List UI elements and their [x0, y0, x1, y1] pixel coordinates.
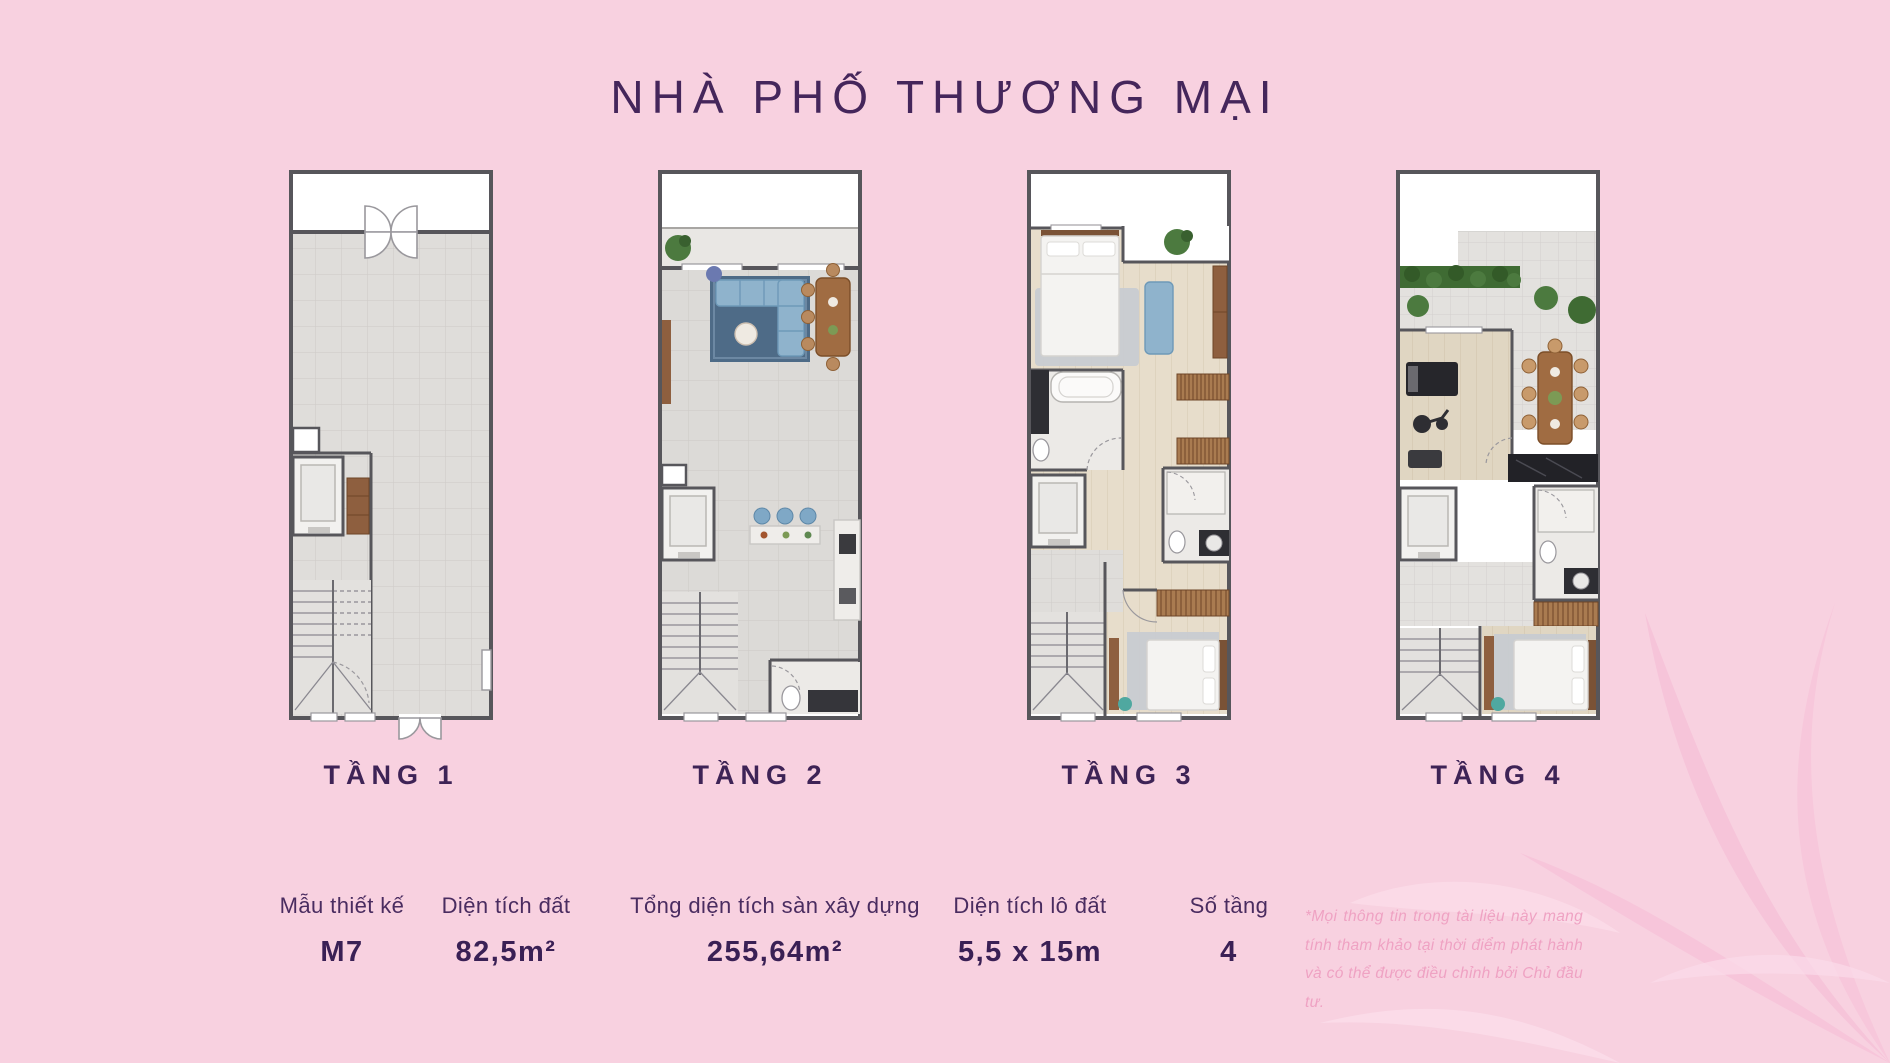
spec-total-floor-area: Tổng diện tích sàn xây dựng 255,64m²: [615, 893, 935, 969]
floorplan-1-image: [289, 170, 493, 752]
floor-label-tang-1: TẦNG 1: [289, 760, 493, 791]
floorplan-tang-3: [1027, 170, 1231, 752]
gym-room: [1400, 327, 1512, 480]
balcony: [662, 228, 858, 268]
landing: [1400, 562, 1534, 626]
hedge-planter: [1400, 265, 1521, 288]
floorplan-2-image: [658, 170, 862, 752]
flower-pot: [706, 266, 722, 282]
spec-land-area: Diện tích đất 82,5m²: [376, 893, 636, 969]
coffee-table: [735, 323, 757, 345]
bar-counter: [750, 508, 820, 544]
plant-icon: [1407, 295, 1429, 317]
staircase: [1400, 626, 1480, 718]
bathroom: [1534, 486, 1598, 600]
plant-icon: [1534, 286, 1558, 310]
elevator: [293, 457, 343, 535]
spec-value: 82,5m²: [376, 936, 636, 969]
floorplan-tang-1: [289, 170, 493, 752]
elevator: [662, 488, 714, 560]
elevator: [1031, 475, 1085, 547]
floorplan-tang-4: [1396, 170, 1600, 752]
kitchen-counter: [834, 520, 860, 620]
shaft: [293, 428, 319, 452]
wardrobe: [1213, 266, 1227, 358]
bed: [1041, 230, 1119, 356]
floor-label-tang-4: TẦNG 4: [1396, 760, 1600, 791]
sofa: [1145, 282, 1173, 354]
spec-value: 255,64m²: [615, 936, 935, 969]
closet-slats: [1534, 602, 1598, 626]
floor-label-tang-3: TẦNG 3: [1027, 760, 1231, 791]
spec-label: Tổng diện tích sàn xây dựng: [615, 893, 935, 919]
page-title: NHÀ PHỐ THƯƠNG MẠI: [0, 70, 1890, 124]
wc: [770, 660, 860, 718]
brochure-page: { "page": { "title": "NHÀ PHỐ THƯƠNG MẠI…: [0, 0, 1890, 1063]
bedroom: [1482, 626, 1596, 714]
staircase: [662, 592, 738, 714]
tv-console: [662, 320, 671, 404]
cabinet: [347, 478, 369, 534]
staircase: [293, 580, 371, 714]
rear-double-door-icon: [399, 714, 441, 739]
landing: [1031, 550, 1123, 612]
bathroom-2: [1163, 468, 1229, 562]
elevator: [1400, 488, 1456, 560]
wall-niche: [482, 650, 491, 690]
floorplan-3-image: [1027, 170, 1231, 752]
floorplan-4-image: [1396, 170, 1600, 752]
floor-label-tang-2: TẦNG 2: [658, 760, 862, 791]
bathroom-1: [1031, 370, 1123, 470]
plant-icon: [1568, 296, 1596, 324]
spec-label: Diện tích đất: [376, 893, 636, 919]
bar-counter: [1508, 454, 1598, 482]
disclaimer-note: *Mọi thông tin trong tài liệu này mang t…: [1305, 903, 1583, 1018]
floorplan-tang-2: [658, 170, 862, 752]
